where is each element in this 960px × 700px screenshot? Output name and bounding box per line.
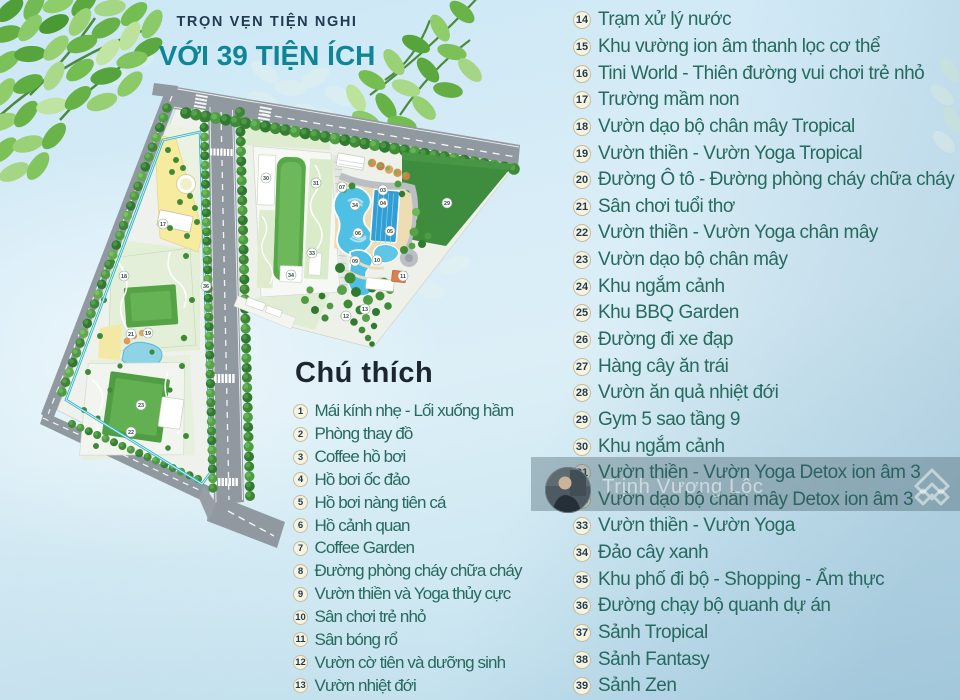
svg-text:18: 18 <box>121 274 127 280</box>
svg-text:31: 31 <box>313 181 319 187</box>
svg-text:17: 17 <box>160 222 166 228</box>
svg-text:34: 34 <box>352 203 358 209</box>
svg-text:11: 11 <box>400 274 406 280</box>
svg-text:21: 21 <box>128 332 134 338</box>
svg-text:09: 09 <box>352 259 358 265</box>
svg-text:12: 12 <box>343 314 349 320</box>
svg-text:06: 06 <box>355 231 361 237</box>
svg-text:33: 33 <box>309 251 315 257</box>
svg-text:05: 05 <box>387 229 393 235</box>
svg-text:03: 03 <box>380 188 386 194</box>
svg-text:07: 07 <box>339 185 345 191</box>
svg-text:22: 22 <box>128 430 134 436</box>
svg-text:04: 04 <box>380 201 386 207</box>
svg-text:29: 29 <box>444 201 450 207</box>
svg-text:10: 10 <box>374 258 380 264</box>
svg-text:34: 34 <box>288 273 294 279</box>
svg-text:23: 23 <box>138 403 144 409</box>
svg-text:19: 19 <box>145 331 151 337</box>
svg-text:30: 30 <box>263 176 269 182</box>
svg-text:36: 36 <box>203 284 209 290</box>
svg-text:13: 13 <box>362 307 368 313</box>
